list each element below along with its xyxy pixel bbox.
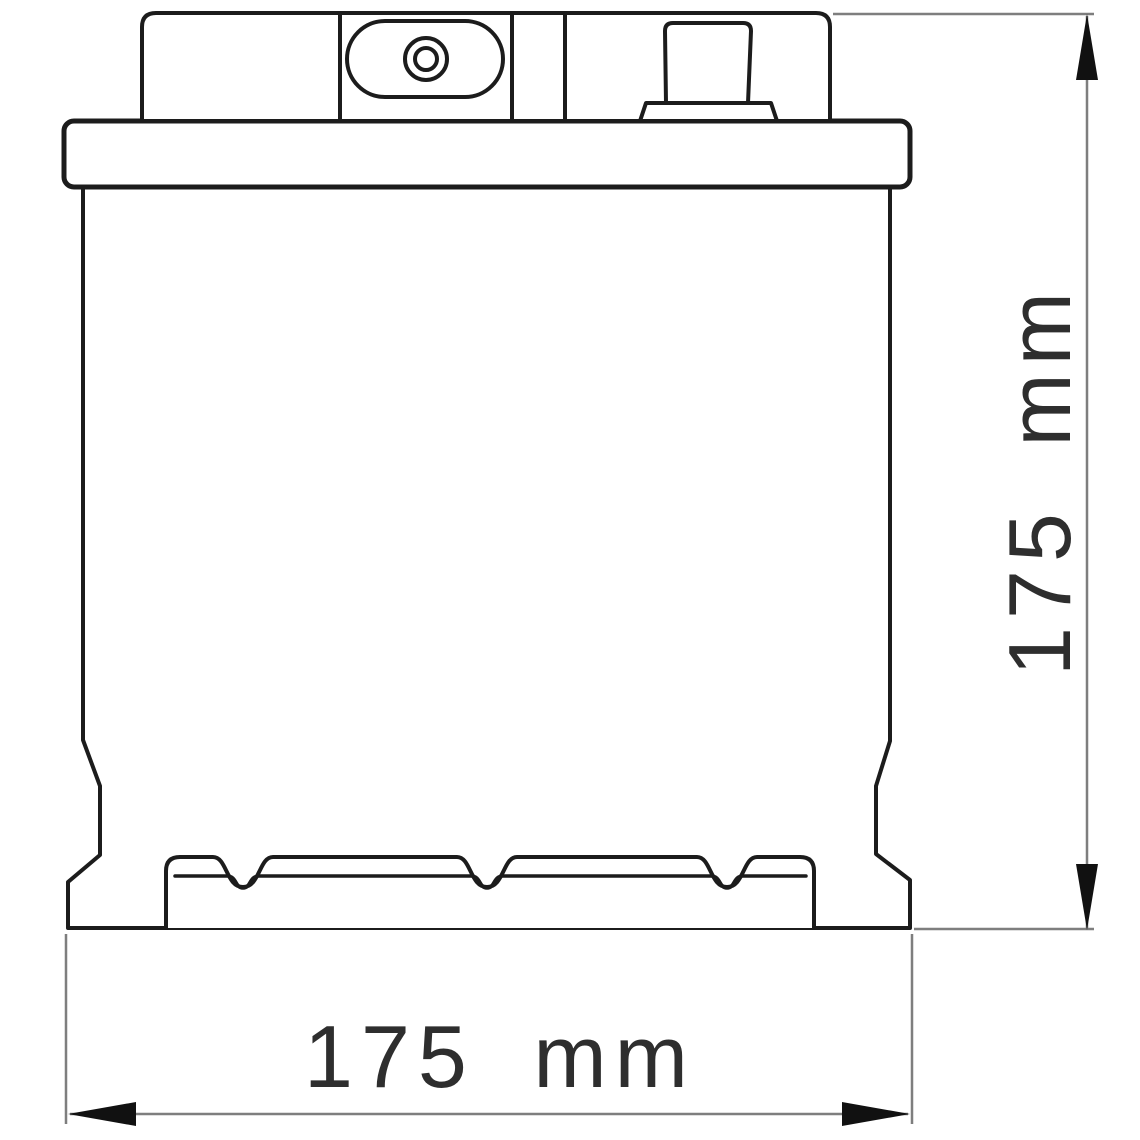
vent-cap-outer-ring	[405, 38, 447, 80]
diagram-canvas: 175 mm 175 mm	[0, 0, 1140, 1140]
battery-drawing	[64, 13, 910, 928]
height-arrow-down	[1076, 864, 1098, 930]
height-dimension-label: 175 mm	[990, 284, 1089, 676]
width-arrow-left	[68, 1102, 136, 1126]
height-arrow-up	[1076, 14, 1098, 80]
battery-lid	[64, 121, 910, 187]
width-dimension-label: 175 mm	[304, 1007, 696, 1106]
terminal-post	[665, 23, 751, 103]
terminal-flange	[640, 103, 777, 121]
width-arrow-right	[842, 1102, 910, 1126]
battery-dimension-diagram: 175 mm 175 mm	[0, 0, 1140, 1140]
battery-body-outline	[68, 188, 910, 928]
